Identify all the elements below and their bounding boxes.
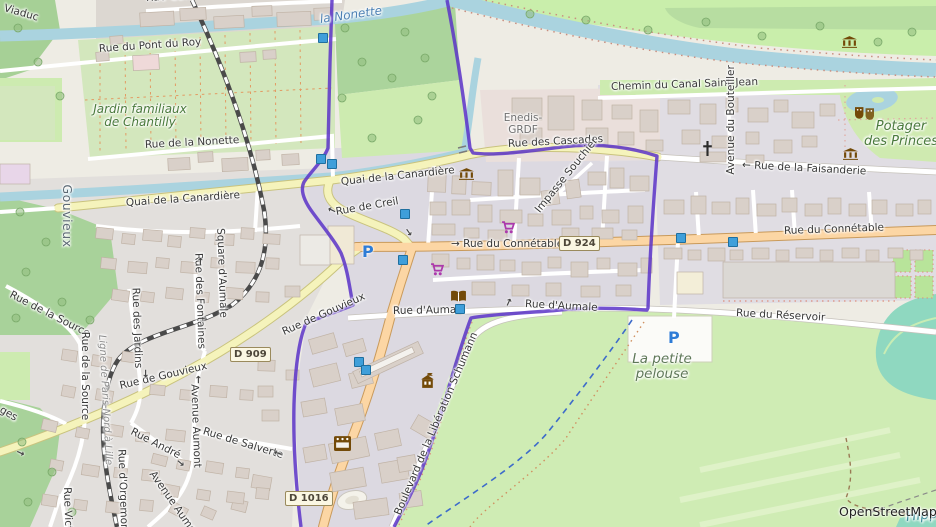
building xyxy=(628,206,643,223)
building xyxy=(736,198,749,214)
building xyxy=(688,250,701,260)
building xyxy=(512,285,529,296)
tree-icon xyxy=(18,438,26,446)
museum-icon-2 xyxy=(842,33,857,52)
traffic-signal-icon xyxy=(398,255,408,265)
traffic-signal-icon xyxy=(316,154,326,164)
building xyxy=(240,52,257,63)
building xyxy=(597,258,610,269)
road-label-rue-des-fontaines: Rue des Fontaines xyxy=(191,253,206,349)
tree-icon xyxy=(86,316,94,324)
building xyxy=(782,198,797,212)
tree-icon xyxy=(526,10,534,18)
building xyxy=(214,15,245,29)
tree-icon xyxy=(341,24,349,32)
building xyxy=(582,100,602,120)
building xyxy=(805,204,822,216)
building xyxy=(140,291,154,303)
building xyxy=(682,130,700,144)
building xyxy=(581,286,600,297)
building xyxy=(700,104,716,124)
tree-icon xyxy=(421,54,429,62)
building xyxy=(528,214,543,226)
building xyxy=(757,204,776,216)
building xyxy=(872,200,887,214)
building xyxy=(196,489,210,501)
building xyxy=(571,262,588,277)
building xyxy=(140,499,154,511)
building xyxy=(236,262,255,274)
worship-icon xyxy=(702,141,713,160)
building xyxy=(866,250,879,261)
building xyxy=(263,234,281,245)
building xyxy=(81,464,100,478)
building xyxy=(546,283,561,296)
building xyxy=(610,168,624,188)
tree-icon xyxy=(22,268,30,276)
building xyxy=(75,427,90,439)
building xyxy=(73,499,87,511)
building xyxy=(122,233,136,244)
map-canvas[interactable]: Viaduc Rue Gan Rue du Pont du Roy Jardin… xyxy=(0,0,936,527)
building xyxy=(165,287,183,300)
building xyxy=(888,248,903,258)
building xyxy=(622,230,637,240)
tree-icon xyxy=(388,74,396,82)
road-shield-d1016: D 1016 xyxy=(285,491,333,506)
building xyxy=(691,196,706,214)
building xyxy=(226,491,244,504)
building xyxy=(588,172,606,185)
road-label-avenue-aumont-v: Avenue Aumont xyxy=(188,384,203,468)
building xyxy=(210,385,228,397)
building xyxy=(802,136,817,147)
building xyxy=(842,248,859,258)
building xyxy=(168,235,182,247)
building xyxy=(522,262,541,275)
building xyxy=(776,250,789,261)
building xyxy=(820,104,835,116)
tree-icon xyxy=(428,92,436,100)
traffic-signal-icon xyxy=(728,237,738,247)
traffic-signal-icon xyxy=(327,159,337,169)
road-label-source-vert: Rue de la Source xyxy=(78,332,90,421)
building xyxy=(774,100,788,112)
traffic-signal-icon xyxy=(361,365,371,375)
tree-icon xyxy=(758,32,766,40)
tree-icon xyxy=(702,18,710,26)
building xyxy=(580,206,593,219)
building xyxy=(910,250,923,260)
building xyxy=(774,140,792,153)
building xyxy=(677,272,703,294)
building xyxy=(820,250,833,261)
building xyxy=(612,105,632,119)
building xyxy=(240,390,254,401)
building xyxy=(168,157,191,170)
townhall-icon xyxy=(419,373,436,393)
building xyxy=(285,286,300,297)
building xyxy=(472,282,495,295)
building xyxy=(640,110,658,132)
building xyxy=(140,11,175,27)
area-label-enedis: Enedis- GRDF xyxy=(493,113,553,137)
building xyxy=(668,100,690,114)
building xyxy=(222,157,249,171)
building xyxy=(263,50,276,60)
building xyxy=(618,263,637,276)
tree-icon xyxy=(16,208,24,216)
building xyxy=(849,204,866,216)
building xyxy=(256,150,271,161)
building xyxy=(746,132,759,144)
building xyxy=(133,54,160,70)
tree-icon xyxy=(401,28,409,36)
building xyxy=(235,467,249,479)
oneway-arrow: → xyxy=(196,257,207,265)
building xyxy=(143,229,163,242)
tree-icon xyxy=(874,38,882,46)
map-tiles xyxy=(0,0,936,527)
building xyxy=(41,494,58,507)
building xyxy=(258,386,273,397)
building xyxy=(156,257,170,268)
tree-icon xyxy=(358,58,366,66)
tree-icon xyxy=(368,134,376,142)
building xyxy=(464,228,479,238)
building xyxy=(752,248,769,259)
building xyxy=(266,258,279,269)
building xyxy=(712,202,730,214)
shop-icon xyxy=(501,219,515,238)
building xyxy=(95,227,113,240)
road-shield-d909: D 909 xyxy=(230,347,271,362)
building xyxy=(457,258,470,269)
building xyxy=(478,205,492,222)
building xyxy=(708,248,725,261)
area-label-potager-des-princes: Potager des Princes xyxy=(855,120,936,149)
building xyxy=(432,224,455,235)
building xyxy=(241,228,255,240)
building xyxy=(498,170,513,196)
building xyxy=(128,261,148,274)
building xyxy=(328,226,354,264)
building xyxy=(723,262,895,298)
building xyxy=(520,178,540,195)
tree-icon xyxy=(42,238,50,246)
building xyxy=(618,132,634,145)
building xyxy=(190,227,206,238)
theatre-icon xyxy=(855,105,874,124)
building xyxy=(0,164,30,184)
museum-icon-3 xyxy=(843,145,858,164)
tree-icon xyxy=(908,28,916,36)
parking-icon-2: P xyxy=(668,330,680,346)
building xyxy=(616,285,631,296)
building xyxy=(602,210,619,223)
road-label-orgemont: Rue d'Orgemont xyxy=(115,449,130,527)
tree-icon xyxy=(582,16,590,24)
traffic-signal-icon xyxy=(400,209,410,219)
building xyxy=(472,182,491,196)
building xyxy=(277,11,311,26)
area-label-jardin-familiaux: Jardin familiaux de Chantilly xyxy=(88,103,192,130)
building xyxy=(896,204,913,216)
building xyxy=(61,349,78,362)
tree-icon xyxy=(414,116,422,124)
building xyxy=(477,255,494,270)
tree-icon xyxy=(48,468,56,476)
building xyxy=(500,260,515,271)
tree-icon xyxy=(34,58,42,66)
building xyxy=(198,152,214,163)
building xyxy=(150,384,166,395)
attribution-openstreetmap[interactable]: OpenStreetMap xyxy=(839,504,936,519)
traffic-signal-icon xyxy=(318,33,328,43)
building xyxy=(792,112,814,128)
building xyxy=(730,250,743,260)
building xyxy=(552,210,571,225)
building xyxy=(828,198,841,214)
building xyxy=(256,487,270,499)
tree-icon xyxy=(58,298,66,306)
traffic-signal-icon xyxy=(455,304,465,314)
road-label-avenue-bouteiller: Avenue du Bouteiller xyxy=(726,64,738,176)
building xyxy=(548,257,561,268)
road-label-rue-des-jardins: Rue des Jardins xyxy=(129,288,144,369)
building xyxy=(252,6,272,17)
building xyxy=(262,410,279,421)
traffic-signal-icon xyxy=(676,233,686,243)
tree-icon xyxy=(816,22,824,30)
building xyxy=(282,154,300,166)
building xyxy=(256,292,269,302)
place-label-gouvieux: Gouvieux xyxy=(60,184,74,247)
cinema-icon xyxy=(334,436,351,455)
building xyxy=(452,200,470,215)
tree-icon xyxy=(12,314,20,322)
building xyxy=(205,461,224,475)
area-label-petite-pelouse: La petite pelouse xyxy=(612,352,712,382)
oneway-arrow: → xyxy=(140,369,151,377)
building xyxy=(664,200,684,214)
road-shield-d924: D 924 xyxy=(559,236,600,251)
building xyxy=(100,257,116,270)
building xyxy=(180,7,207,20)
building xyxy=(918,200,931,214)
building xyxy=(664,248,682,259)
building xyxy=(796,248,813,258)
building xyxy=(61,385,76,398)
tree-icon xyxy=(56,92,64,100)
tree-icon xyxy=(14,24,22,32)
building xyxy=(630,176,649,191)
shop-icon-2 xyxy=(430,261,444,280)
building xyxy=(300,235,330,265)
building xyxy=(165,429,185,442)
road-label-square-aumale: Square d'Aumale xyxy=(214,228,229,318)
road-label-rue-victor: Rue Victor xyxy=(60,487,74,527)
tree-icon xyxy=(24,498,32,506)
road-label-connetable-center: → Rue du Connétable xyxy=(451,239,563,251)
parking-icon: P xyxy=(362,244,374,260)
building xyxy=(748,108,768,122)
tree-icon xyxy=(644,26,652,34)
oneway-arrow: → xyxy=(194,375,205,383)
building xyxy=(646,140,663,151)
building xyxy=(111,289,129,302)
building xyxy=(430,202,446,215)
tree-icon xyxy=(338,94,346,102)
museum-icon xyxy=(459,165,474,184)
